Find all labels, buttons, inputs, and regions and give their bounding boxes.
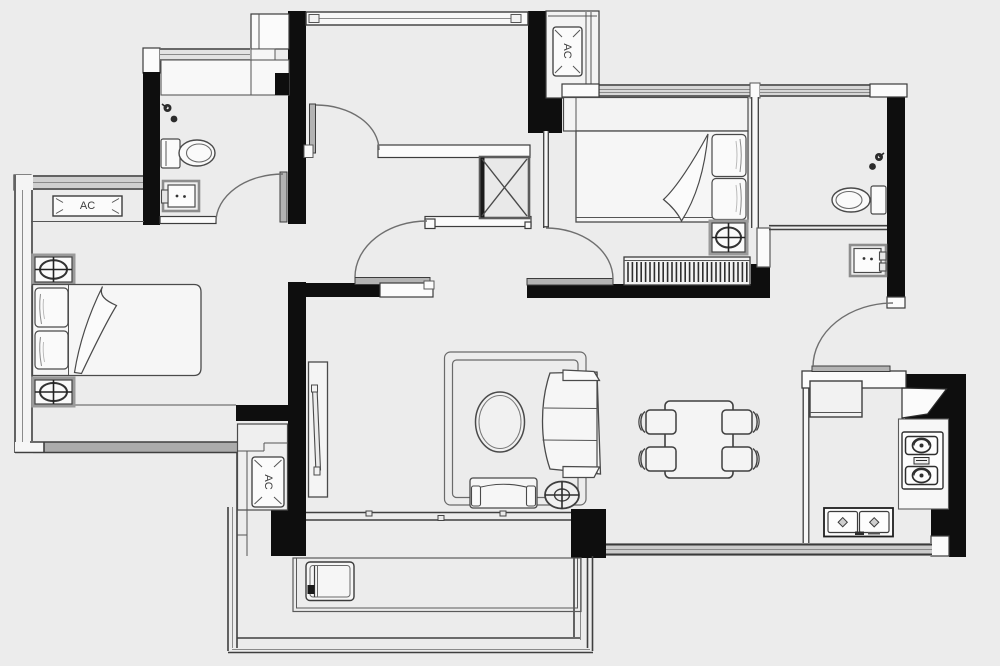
svg-text:AC: AC xyxy=(561,43,573,58)
svg-text:AC: AC xyxy=(80,200,95,212)
svg-text:AC: AC xyxy=(262,474,274,489)
